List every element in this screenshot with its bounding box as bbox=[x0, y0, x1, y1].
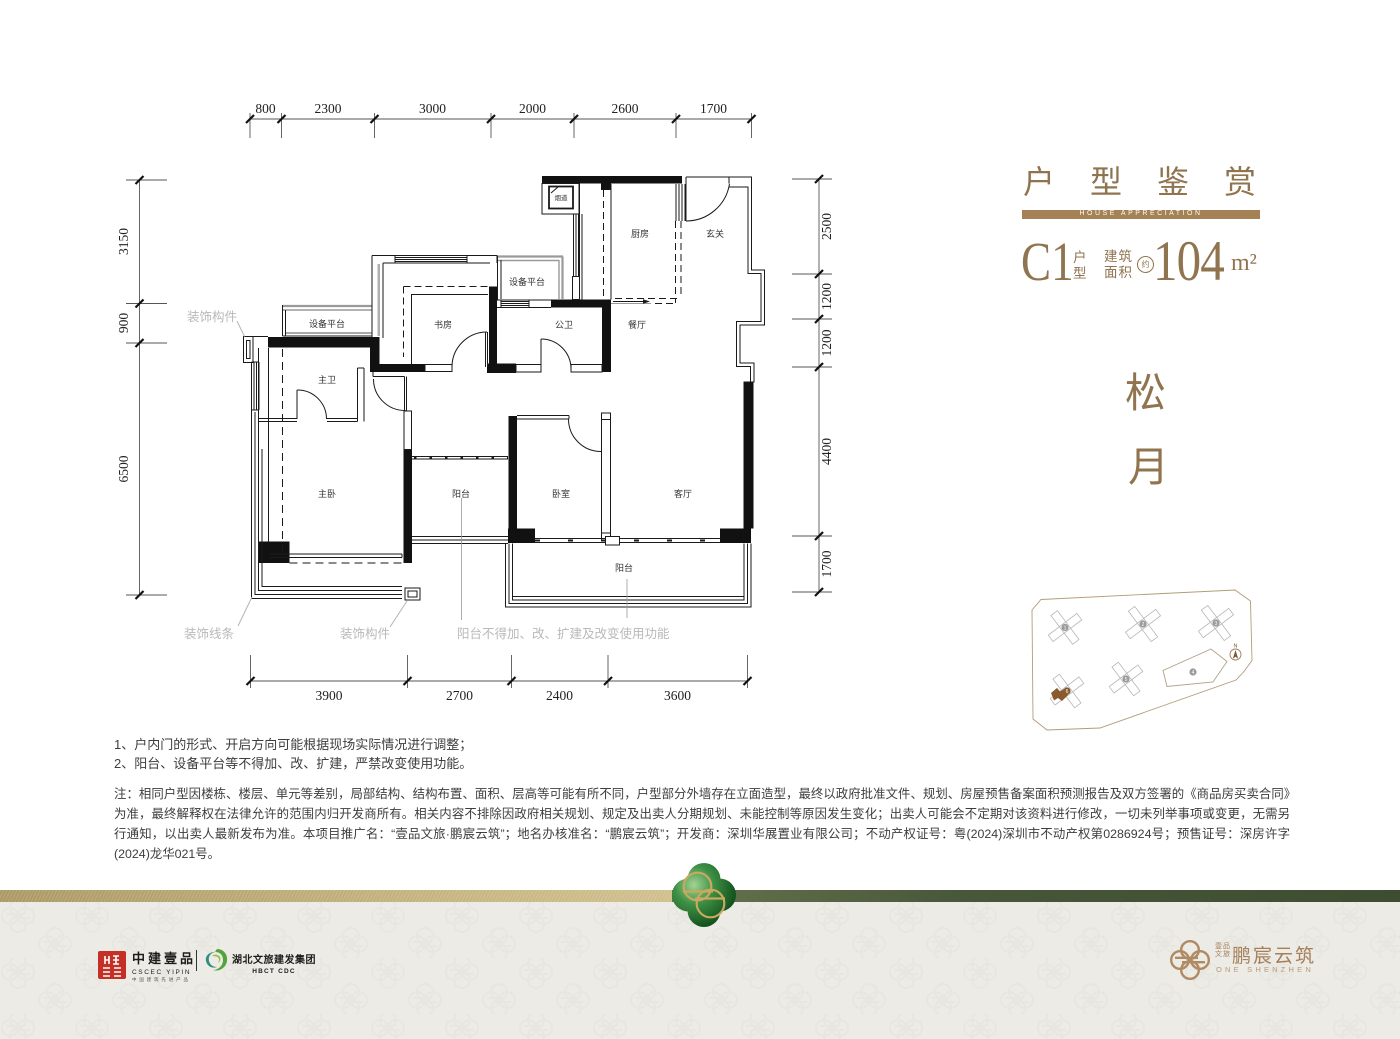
svg-text:卧室: 卧室 bbox=[552, 488, 570, 499]
svg-text:阳台: 阳台 bbox=[615, 562, 633, 573]
svg-text:4400: 4400 bbox=[819, 438, 834, 465]
svg-text:3150: 3150 bbox=[116, 228, 131, 255]
svg-text:6: 6 bbox=[1066, 689, 1069, 695]
svg-text:餐厅: 餐厅 bbox=[628, 319, 646, 330]
svg-text:2: 2 bbox=[1142, 622, 1145, 628]
svg-text:4: 4 bbox=[1192, 670, 1195, 676]
svg-text:主卫: 主卫 bbox=[318, 374, 336, 385]
svg-text:装饰构件: 装饰构件 bbox=[340, 626, 390, 641]
svg-text:3: 3 bbox=[1215, 621, 1218, 627]
svg-text:1: 1 bbox=[1064, 625, 1067, 631]
svg-text:客厅: 客厅 bbox=[674, 488, 692, 499]
svg-text:2000: 2000 bbox=[519, 101, 546, 116]
svg-text:阳台: 阳台 bbox=[452, 488, 470, 499]
svg-text:2600: 2600 bbox=[612, 101, 639, 116]
svg-text:800: 800 bbox=[255, 101, 276, 116]
svg-text:厨房: 厨房 bbox=[631, 228, 649, 239]
svg-text:3000: 3000 bbox=[419, 101, 446, 116]
svg-text:装饰构件: 装饰构件 bbox=[187, 309, 237, 324]
svg-text:装饰线条: 装饰线条 bbox=[184, 627, 235, 641]
svg-text:设备平台: 设备平台 bbox=[509, 276, 545, 287]
svg-text:2300: 2300 bbox=[315, 101, 342, 116]
svg-text:N: N bbox=[1234, 644, 1238, 650]
svg-text:5: 5 bbox=[1125, 677, 1128, 683]
svg-text:6500: 6500 bbox=[116, 455, 131, 482]
svg-text:1200: 1200 bbox=[819, 329, 834, 356]
svg-text:设备平台: 设备平台 bbox=[309, 318, 345, 329]
svg-text:主卧: 主卧 bbox=[318, 488, 336, 499]
svg-text:书房: 书房 bbox=[434, 319, 452, 330]
svg-text:3600: 3600 bbox=[664, 688, 691, 703]
svg-text:公卫: 公卫 bbox=[555, 320, 573, 330]
svg-text:1700: 1700 bbox=[819, 550, 834, 577]
svg-text:3900: 3900 bbox=[316, 688, 343, 703]
svg-text:1700: 1700 bbox=[700, 101, 727, 116]
svg-text:2400: 2400 bbox=[546, 688, 573, 703]
svg-text:900: 900 bbox=[116, 313, 131, 334]
svg-text:1200: 1200 bbox=[819, 283, 834, 310]
svg-text:烟道: 烟道 bbox=[555, 193, 569, 202]
svg-text:玄关: 玄关 bbox=[706, 228, 724, 239]
svg-text:2700: 2700 bbox=[446, 688, 473, 703]
svg-text:2500: 2500 bbox=[819, 213, 834, 240]
svg-text:阳台不得加、改、扩建及改变使用功能: 阳台不得加、改、扩建及改变使用功能 bbox=[457, 626, 670, 641]
